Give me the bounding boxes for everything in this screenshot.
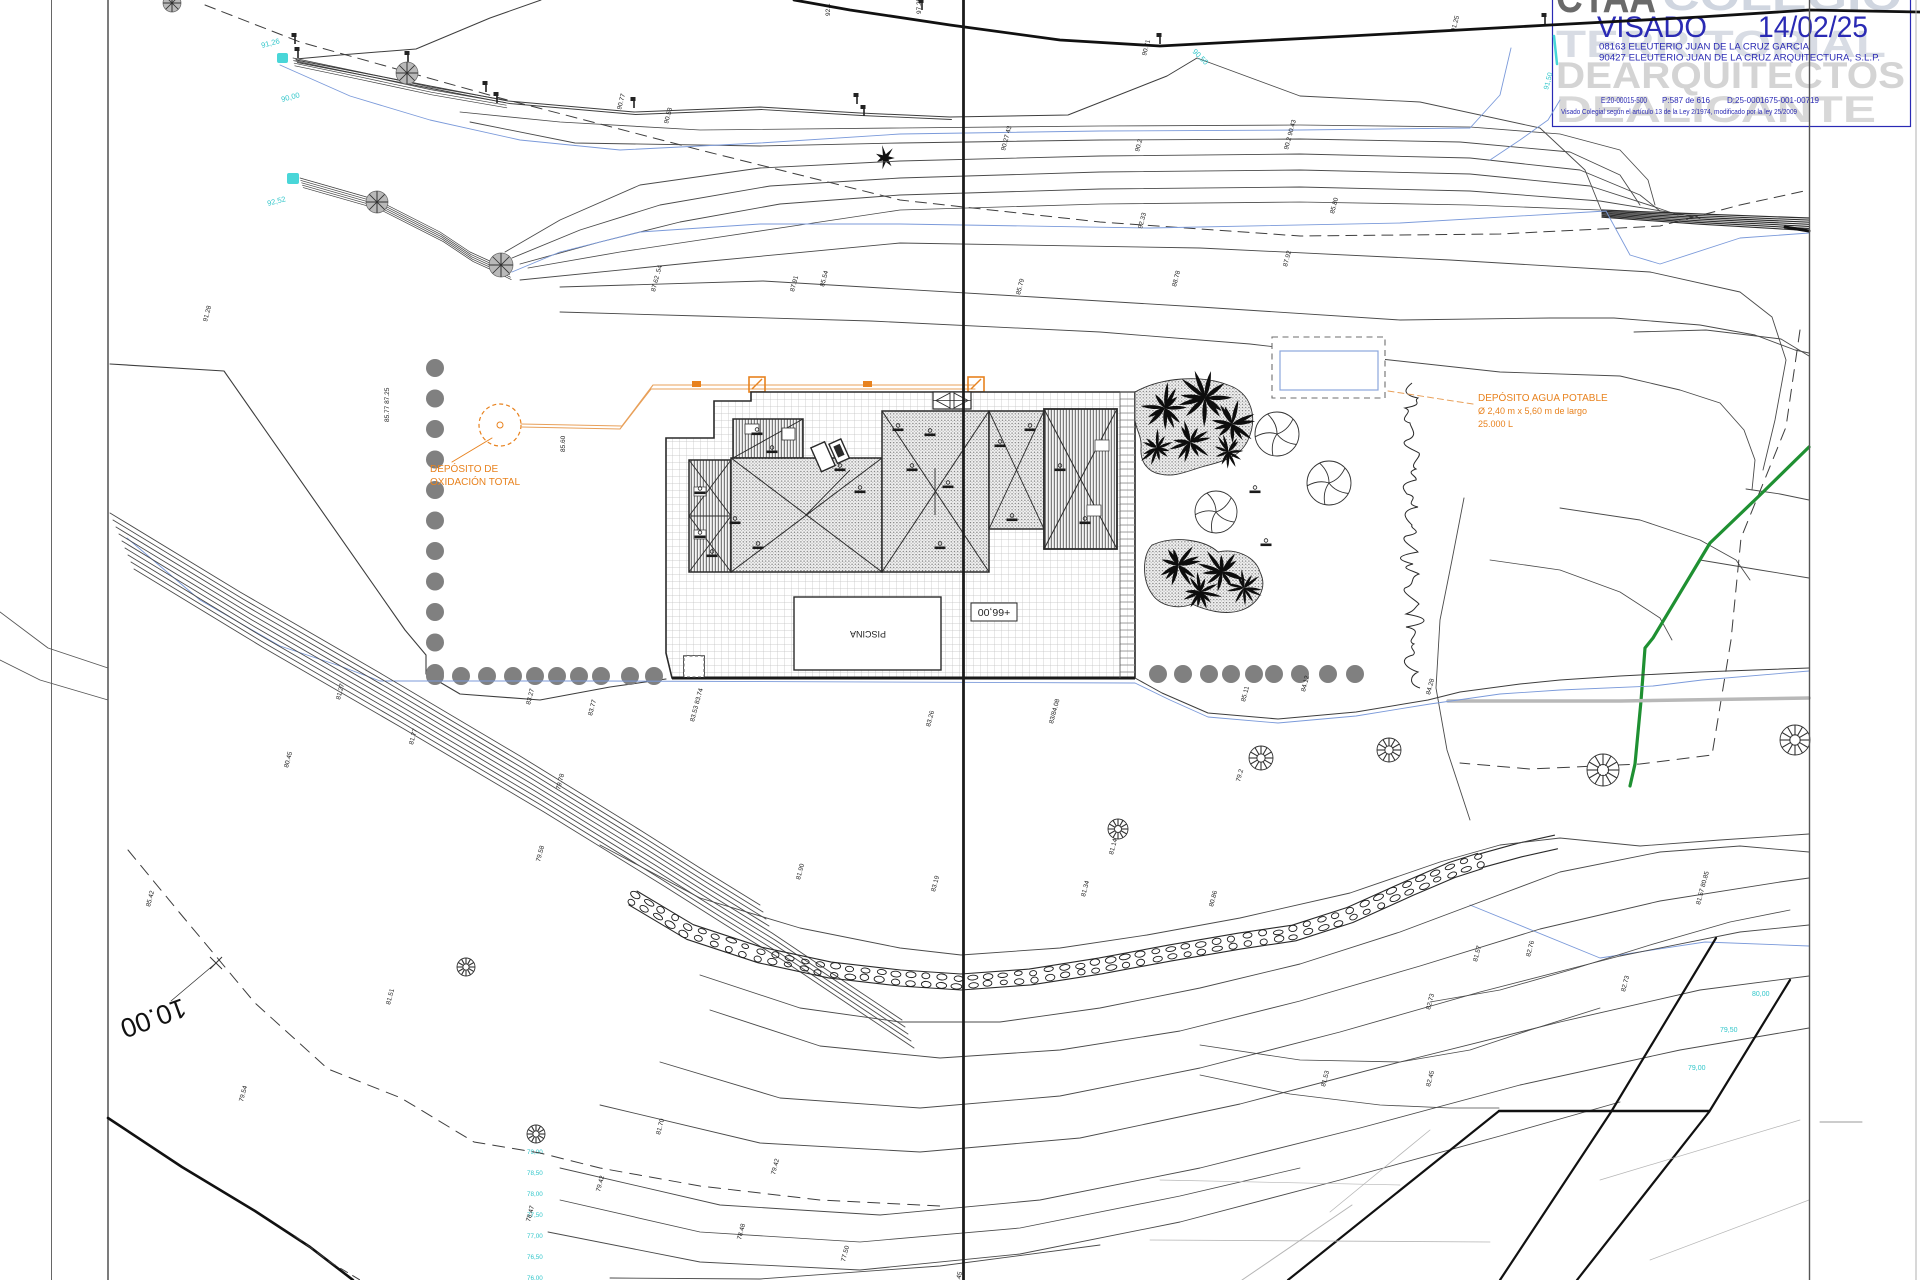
svg-text:76,00: 76,00: [527, 1275, 543, 1280]
svg-text:77,00: 77,00: [527, 1233, 543, 1240]
svg-text:79,50: 79,50: [1720, 1027, 1738, 1034]
svg-text:97.25: 97.25: [916, 0, 923, 14]
svg-text:78,50: 78,50: [527, 1170, 543, 1177]
svg-text:80,00: 80,00: [1752, 991, 1770, 998]
svg-text:P:587 de 616: P:587 de 616: [1662, 95, 1710, 105]
svg-text:+66,00: +66,00: [978, 606, 1011, 618]
svg-text:08163 ELEUTERIO JUAN DE LA CRU: 08163 ELEUTERIO JUAN DE LA CRUZ GARCIA: [1599, 42, 1809, 52]
svg-text:E:20-00015-500: E:20-00015-500: [1601, 95, 1647, 105]
svg-text:VISADO: VISADO: [1597, 11, 1707, 44]
svg-text:85.60: 85.60: [560, 435, 567, 452]
svg-text:85.77 87.25: 85.77 87.25: [384, 387, 391, 422]
svg-text:90427 ELEUTERIO JUAN DE LA CRU: 90427 ELEUTERIO JUAN DE LA CRUZ ARQUITEC…: [1599, 53, 1880, 63]
svg-text:OXIDACIÓN TOTAL: OXIDACIÓN TOTAL: [430, 475, 520, 488]
svg-text:DEPÓSITO AGUA POTABLE: DEPÓSITO AGUA POTABLE: [1478, 391, 1608, 404]
svg-text:DEPÓSITO DE: DEPÓSITO DE: [430, 462, 498, 475]
svg-text:25.000 L: 25.000 L: [1478, 419, 1513, 429]
svg-text:PISCINA: PISCINA: [850, 629, 886, 639]
svg-text:Ø 2,40 m x 5,60 m de largo: Ø 2,40 m x 5,60 m de largo: [1478, 406, 1587, 416]
svg-text:D:25-0001675-001-00719: D:25-0001675-001-00719: [1727, 95, 1819, 105]
svg-text:76,50: 76,50: [527, 1254, 543, 1261]
svg-text:79,00: 79,00: [1688, 1065, 1706, 1072]
svg-text:78,00: 78,00: [527, 1191, 543, 1198]
svg-text:14/02/25: 14/02/25: [1758, 11, 1868, 44]
svg-text:Visado Colegial según el artíc: Visado Colegial según el artículo 13 de …: [1561, 107, 1797, 116]
